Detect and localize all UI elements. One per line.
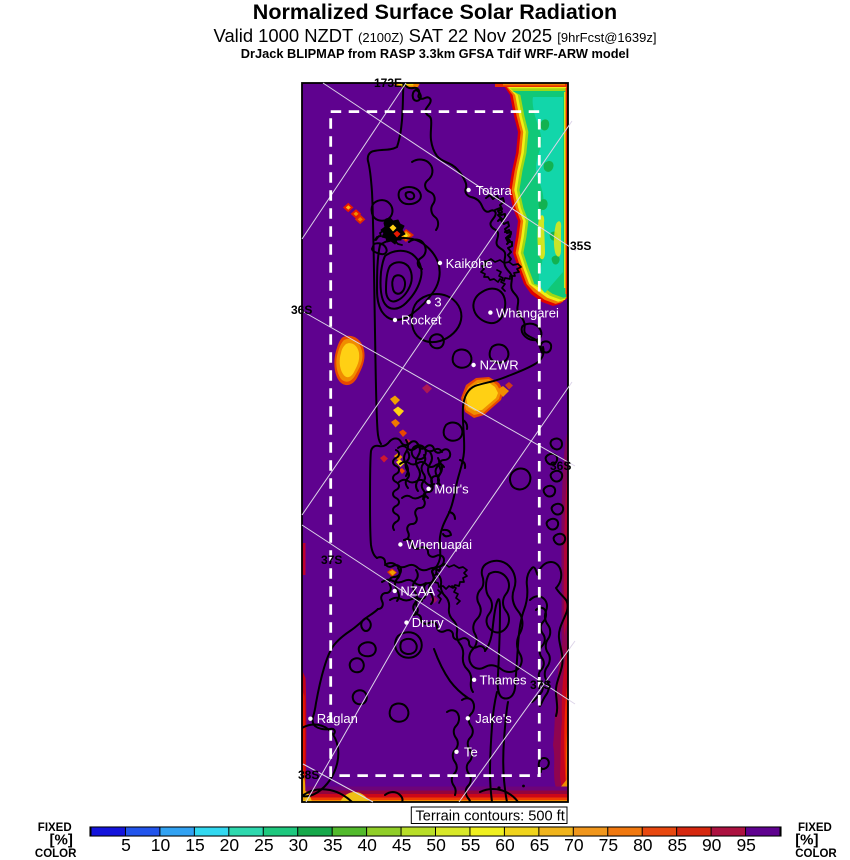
svg-text:25: 25 bbox=[254, 835, 273, 855]
svg-text:Terrain contours: 500 ft: Terrain contours: 500 ft bbox=[416, 808, 565, 824]
svg-text:Drury: Drury bbox=[412, 615, 444, 630]
svg-text:Te: Te bbox=[464, 744, 478, 759]
svg-text:90: 90 bbox=[702, 835, 722, 855]
svg-text:85: 85 bbox=[668, 835, 687, 855]
svg-text:Jake's: Jake's bbox=[475, 711, 512, 726]
svg-text:Kaikohe: Kaikohe bbox=[446, 256, 493, 271]
svg-text:36S: 36S bbox=[550, 459, 571, 473]
svg-text:65: 65 bbox=[530, 835, 549, 855]
svg-text:173E: 173E bbox=[374, 76, 402, 90]
svg-text:45: 45 bbox=[392, 835, 411, 855]
svg-text:NZAA: NZAA bbox=[400, 583, 435, 598]
svg-text:50: 50 bbox=[426, 835, 446, 855]
svg-text:Whenuapai: Whenuapai bbox=[406, 537, 472, 552]
svg-text:Rocket: Rocket bbox=[401, 313, 442, 328]
svg-text:Totara: Totara bbox=[476, 183, 513, 198]
svg-text:[%]: [%] bbox=[50, 832, 73, 849]
svg-text:5: 5 bbox=[121, 835, 131, 855]
svg-text:35: 35 bbox=[323, 835, 342, 855]
svg-text:80: 80 bbox=[633, 835, 653, 855]
svg-text:[%]: [%] bbox=[795, 832, 818, 849]
svg-text:15: 15 bbox=[185, 835, 204, 855]
svg-text:36S: 36S bbox=[291, 303, 312, 317]
svg-text:Moir's: Moir's bbox=[434, 481, 469, 496]
svg-text:Thames: Thames bbox=[480, 672, 527, 687]
svg-text:COLOR: COLOR bbox=[35, 848, 77, 860]
svg-text:30: 30 bbox=[289, 835, 309, 855]
svg-text:37S: 37S bbox=[530, 678, 551, 692]
svg-text:55: 55 bbox=[461, 835, 480, 855]
svg-text:NZWR: NZWR bbox=[480, 358, 519, 373]
svg-text:20: 20 bbox=[220, 835, 240, 855]
svg-text:37S: 37S bbox=[321, 553, 342, 567]
svg-text:10: 10 bbox=[151, 835, 171, 855]
svg-text:70: 70 bbox=[564, 835, 584, 855]
svg-text:40: 40 bbox=[357, 835, 377, 855]
svg-text:38S: 38S bbox=[298, 768, 319, 782]
svg-text:95: 95 bbox=[736, 835, 755, 855]
svg-text:Whangarei: Whangarei bbox=[496, 305, 559, 320]
svg-text:35S: 35S bbox=[570, 239, 591, 253]
svg-text:COLOR: COLOR bbox=[795, 848, 837, 860]
svg-text:75: 75 bbox=[599, 835, 618, 855]
svg-text:3: 3 bbox=[434, 295, 441, 310]
svg-text:Raglan: Raglan bbox=[317, 711, 358, 726]
svg-text:60: 60 bbox=[495, 835, 515, 855]
